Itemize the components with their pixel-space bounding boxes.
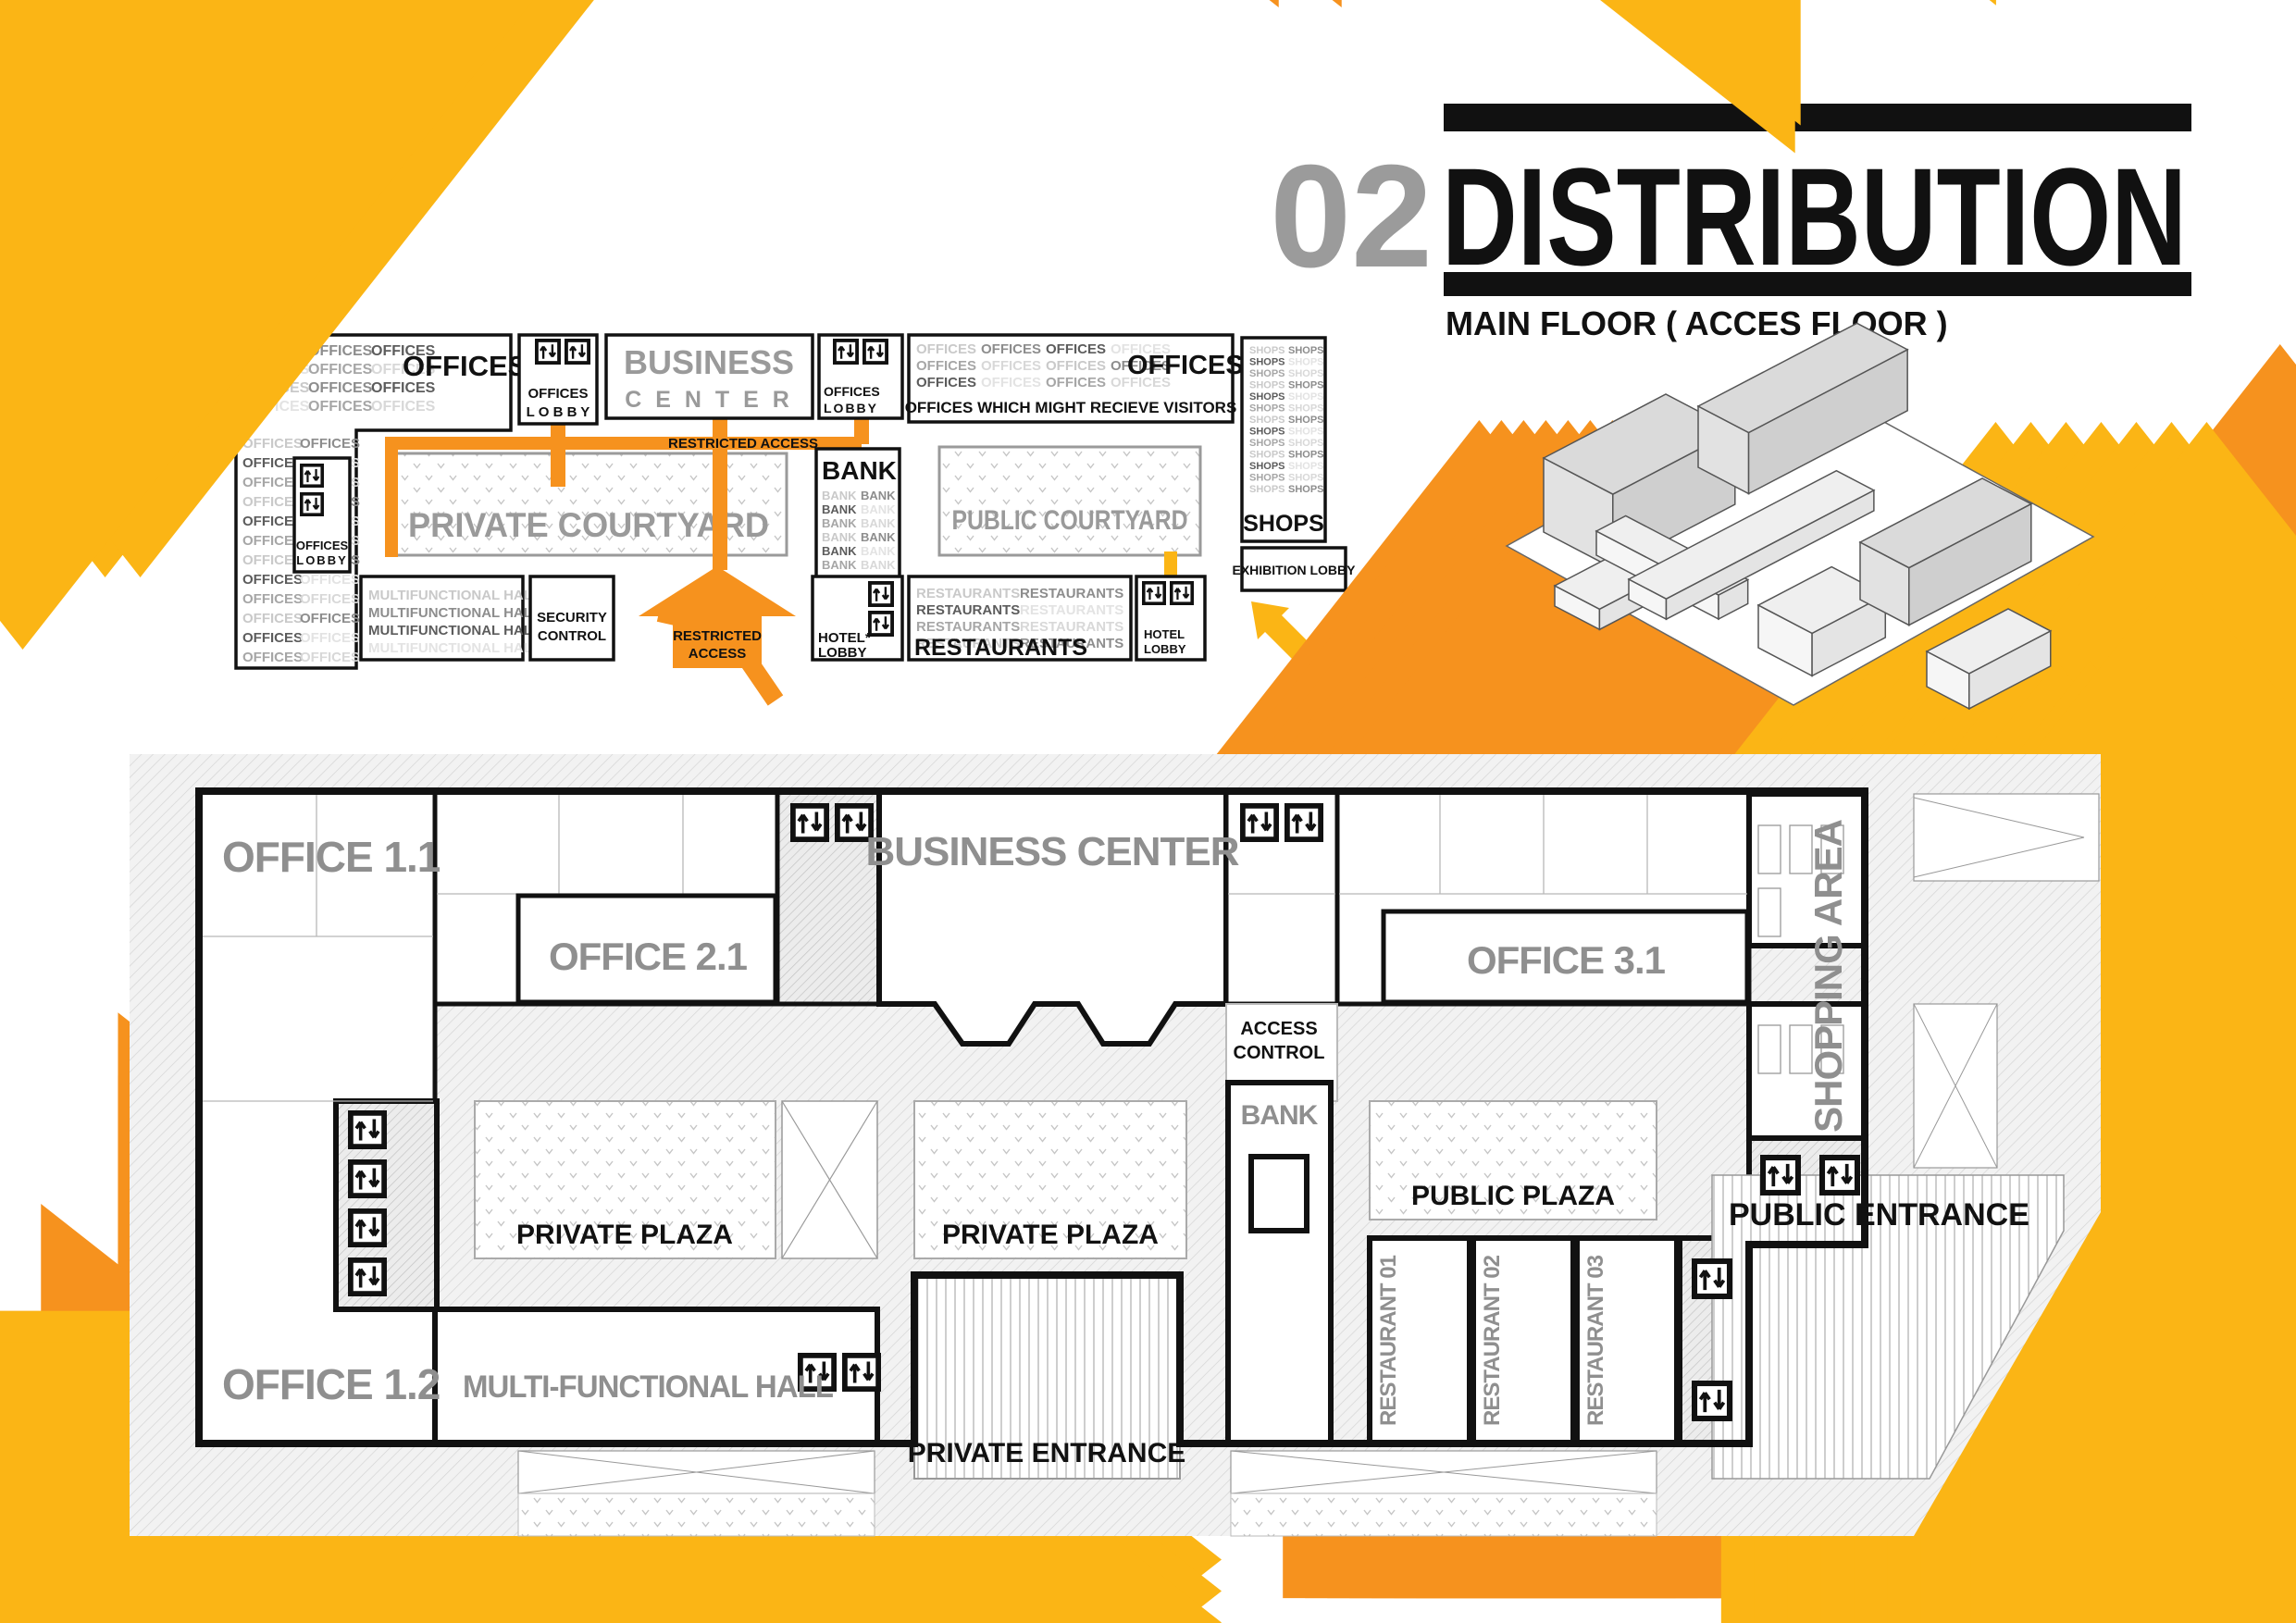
elevator-up-down-icon: [348, 1258, 387, 1296]
page-title: DISTRIBUTION: [1442, 139, 2187, 294]
pattern-word: OFFICES: [308, 380, 373, 396]
offices-left-label: OFFICES: [403, 350, 527, 382]
pattern-word: OFFICES: [242, 611, 303, 626]
offices-lobby-small-line2: LOBBY: [296, 553, 348, 567]
title-top-bar: [1444, 104, 2191, 131]
offices-lobby-2-line2: LOBBY: [824, 401, 878, 415]
business-center-line2: C E N T E R: [625, 387, 793, 413]
pattern-word: BANK: [861, 489, 896, 502]
elevator-up-down-icon: [842, 1353, 881, 1392]
pattern-word: BANK: [822, 544, 857, 558]
business-center-line1: BUSINESS: [624, 343, 794, 381]
pattern-word: OFFICES: [981, 358, 1041, 374]
hotel-lobby-line1: HOTEL: [1144, 627, 1185, 641]
private-plaza-1-label: PRIVATE PLAZA: [516, 1220, 733, 1250]
business-center-label: BUSINESS CENTER: [865, 829, 1238, 874]
elevator-up-down-icon: [1285, 803, 1323, 842]
elevator-up-down-icon: [535, 339, 561, 365]
pattern-word: SHOPS: [1249, 357, 1285, 368]
elevator-up-down-icon: [348, 1208, 387, 1247]
elevator-up-down-icon: [863, 339, 888, 365]
restaurant-03-label: RESTAURANT 03: [1583, 1255, 1608, 1426]
pattern-word: SHOPS: [1288, 484, 1324, 495]
restaurants-label: RESTAURANTS: [914, 635, 1087, 661]
pattern-word: OFFICES: [242, 591, 303, 607]
pattern-word: OFFICES: [916, 341, 976, 357]
shopping-area-label: SHOPPING AREA: [1806, 819, 1850, 1132]
pattern-word: OFFICES: [916, 375, 976, 390]
offices-right-label: OFFICES: [1127, 351, 1244, 380]
pattern-word: SHOPS: [1249, 450, 1285, 461]
elevator-up-down-icon: [565, 339, 590, 365]
pattern-word: OFFICES: [300, 611, 360, 626]
elevator-up-down-icon: [1240, 803, 1279, 842]
pattern-word: SHOPS: [1288, 438, 1324, 449]
public-entrance-label: PUBLIC ENTRANCE: [1729, 1197, 2029, 1233]
pattern-word: RESTAURANTS: [916, 602, 1020, 618]
pattern-word: SHOPS: [1288, 427, 1324, 438]
title-block: 02 DISTRIBUTION MAIN FLOOR ( ACCES FLOOR…: [1270, 104, 2191, 342]
pattern-word: OFFICES: [981, 341, 1041, 357]
pattern-word: OFFICES: [1046, 375, 1106, 390]
offices-lobby-small-line1: OFFICES: [296, 539, 349, 552]
restaurant-01-label: RESTAURANT 01: [1376, 1255, 1401, 1426]
dotted-box-b: [1231, 1493, 1657, 1536]
restricted-access-arrow-line1: RESTRICTED: [673, 628, 762, 644]
public-plaza-label: PUBLIC PLAZA: [1411, 1181, 1615, 1211]
pattern-word: BANK: [861, 544, 896, 558]
orange-arrow-icon: [572, 0, 2221, 7]
offices-lobby-2-line1: OFFICES: [824, 384, 880, 399]
restricted-access-arrow-line2: ACCESS: [689, 646, 747, 662]
elevator-up-down-icon: [1142, 581, 1166, 605]
pattern-word: SHOPS: [1288, 357, 1324, 368]
pattern-word: SHOPS: [1288, 368, 1324, 379]
offices-lobby-1-line2: L O B B Y: [527, 404, 590, 420]
pattern-word: BANK: [822, 530, 857, 544]
office-11-label: OFFICE 1.1: [222, 833, 441, 881]
yellow-arrow-icon: [1336, 0, 2296, 6]
pattern-word: SHOPS: [1249, 415, 1285, 426]
pattern-word: SHOPS: [1249, 345, 1285, 356]
pattern-word: BANK: [822, 516, 857, 530]
pattern-word: BANK: [861, 530, 896, 544]
offices-right-note: OFFICES WHICH MIGHT RECIEVE VISITORS: [905, 399, 1237, 416]
elevator-up-down-icon: [833, 339, 859, 365]
schematic-public-courtyard: [939, 447, 1200, 555]
pattern-word: OFFICES: [242, 572, 303, 588]
pattern-word: SHOPS: [1249, 368, 1285, 379]
pattern-word: OFFICES: [1046, 358, 1106, 374]
elevator-up-down-icon: [1170, 581, 1194, 605]
pattern-word: BANK: [861, 516, 896, 530]
elevator-up-down-icon: [348, 1159, 387, 1198]
public-courtyard-label: PUBLIC COURTYARD: [952, 505, 1188, 536]
pattern-word: SHOPS: [1288, 473, 1324, 484]
pattern-word: SHOPS: [1288, 403, 1324, 415]
pattern-word: SHOPS: [1249, 380, 1285, 391]
pattern-word: BANK: [861, 558, 896, 572]
private-plaza-2-label: PRIVATE PLAZA: [942, 1220, 1159, 1250]
office-12-label: OFFICE 1.2: [222, 1360, 440, 1408]
pattern-word: SHOPS: [1288, 380, 1324, 391]
pattern-word: MULTIFUNCTIONAL HALL: [368, 588, 540, 603]
elevator-up-down-icon: [1819, 1155, 1860, 1196]
restaurant-02-label: RESTAURANT 02: [1480, 1255, 1505, 1426]
private-entrance-label: PRIVATE ENTRANCE: [908, 1438, 1186, 1468]
pattern-word: RESTAURANTS: [916, 586, 1020, 601]
pattern-word: BANK: [822, 502, 857, 516]
pattern-word: OFFICES: [1046, 341, 1106, 357]
pattern-word: RESTAURANTS: [1020, 619, 1123, 635]
elevator-up-down-icon: [790, 803, 829, 842]
pattern-word: OFFICES: [242, 630, 303, 646]
elevator-up-down-icon: [1692, 1258, 1732, 1299]
pattern-word: SHOPS: [1288, 415, 1324, 426]
pattern-word: OFFICES: [242, 650, 303, 665]
pattern-word: SHOPS: [1249, 403, 1285, 415]
office-21-label: OFFICE 2.1: [549, 935, 748, 978]
pattern-word: SHOPS: [1288, 345, 1324, 356]
pattern-word: OFFICES: [242, 436, 303, 452]
pattern-word: SHOPS: [1288, 391, 1324, 403]
pattern-word: BANK: [822, 558, 857, 572]
access-control-line1: ACCESS: [1240, 1019, 1317, 1039]
elevator-up-down-icon: [1760, 1155, 1801, 1196]
shops-label: SHOPS: [1243, 511, 1324, 537]
hotel-lobby-star-line2: LOBBY: [818, 645, 867, 661]
pattern-word: SHOPS: [1249, 461, 1285, 472]
security-control-line1: SECURITY: [537, 610, 607, 626]
restricted-access-label: RESTRICTED ACCESS: [668, 436, 818, 452]
pattern-word: OFFICES: [371, 380, 436, 396]
floor-plan: OFFICE 1.1 OFFICE 2.1 BUSINESS CENTER OF…: [130, 754, 2101, 1536]
office-31-label: OFFICE 3.1: [1467, 938, 1666, 982]
pattern-word: OFFICES: [300, 630, 360, 646]
security-control-line2: CONTROL: [538, 628, 606, 644]
pattern-word: OFFICES: [308, 362, 373, 378]
pattern-word: OFFICES: [300, 650, 360, 665]
pattern-word: SHOPS: [1249, 427, 1285, 438]
pattern-word: SHOPS: [1249, 391, 1285, 403]
pattern-word: SHOPS: [1249, 484, 1285, 495]
bank-room: [1228, 1083, 1331, 1443]
pattern-word: OFFICES: [300, 436, 360, 452]
elevator-up-down-icon: [348, 1110, 387, 1149]
pattern-word: OFFICES: [300, 572, 360, 588]
elevator-up-down-icon: [868, 581, 894, 607]
hotel-lobby-star-line1: HOTEL*: [818, 630, 871, 646]
pattern-word: OFFICES: [916, 358, 976, 374]
pattern-word: SHOPS: [1249, 438, 1285, 449]
pattern-word: MULTIFUNCTIONAL HALL: [368, 640, 540, 656]
pattern-word: BANK: [822, 489, 857, 502]
bank-label: BANK: [822, 456, 897, 485]
elevator-up-down-icon: [868, 611, 894, 637]
pattern-word: OFFICES: [308, 399, 373, 415]
access-control-line2: CONTROL: [1234, 1043, 1325, 1063]
dotted-box-a: [518, 1493, 875, 1536]
section-number: 02: [1270, 135, 1433, 298]
pattern-word: OFFICES: [300, 591, 360, 607]
pattern-word: RESTAURANTS: [1020, 586, 1123, 601]
bank-vault: [1251, 1157, 1307, 1231]
pattern-word: MULTIFUNCTIONAL HALL: [368, 605, 540, 621]
pattern-word: MULTIFUNCTIONAL HALL: [368, 623, 540, 638]
pattern-word: OFFICES: [371, 399, 436, 415]
distribution-poster: 02 DISTRIBUTION MAIN FLOOR ( ACCES FLOOR…: [0, 0, 2296, 1623]
pattern-word: OFFICES: [981, 375, 1041, 390]
pattern-word: SHOPS: [1249, 473, 1285, 484]
pattern-word: RESTAURANTS: [916, 619, 1020, 635]
elevator-up-down-icon: [300, 464, 324, 488]
pattern-word: SHOPS: [1288, 450, 1324, 461]
elevator-up-down-icon: [1692, 1381, 1732, 1421]
pattern-word: BANK: [861, 502, 896, 516]
bank-plan-label: BANK: [1241, 1100, 1319, 1131]
pattern-word: RESTAURANTS: [1020, 602, 1123, 618]
multi-functional-hall-label: MULTI-FUNCTIONAL HALL: [463, 1369, 833, 1405]
offices-lobby-1-line1: OFFICES: [527, 386, 588, 402]
pattern-word: SHOPS: [1288, 461, 1324, 472]
exhibition-lobby-label: EXHIBITION LOBBY: [1232, 563, 1356, 577]
hotel-lobby-line2: LOBBY: [1144, 642, 1186, 656]
elevator-up-down-icon: [300, 492, 324, 516]
ramp-box-top-right: [1914, 794, 2099, 881]
